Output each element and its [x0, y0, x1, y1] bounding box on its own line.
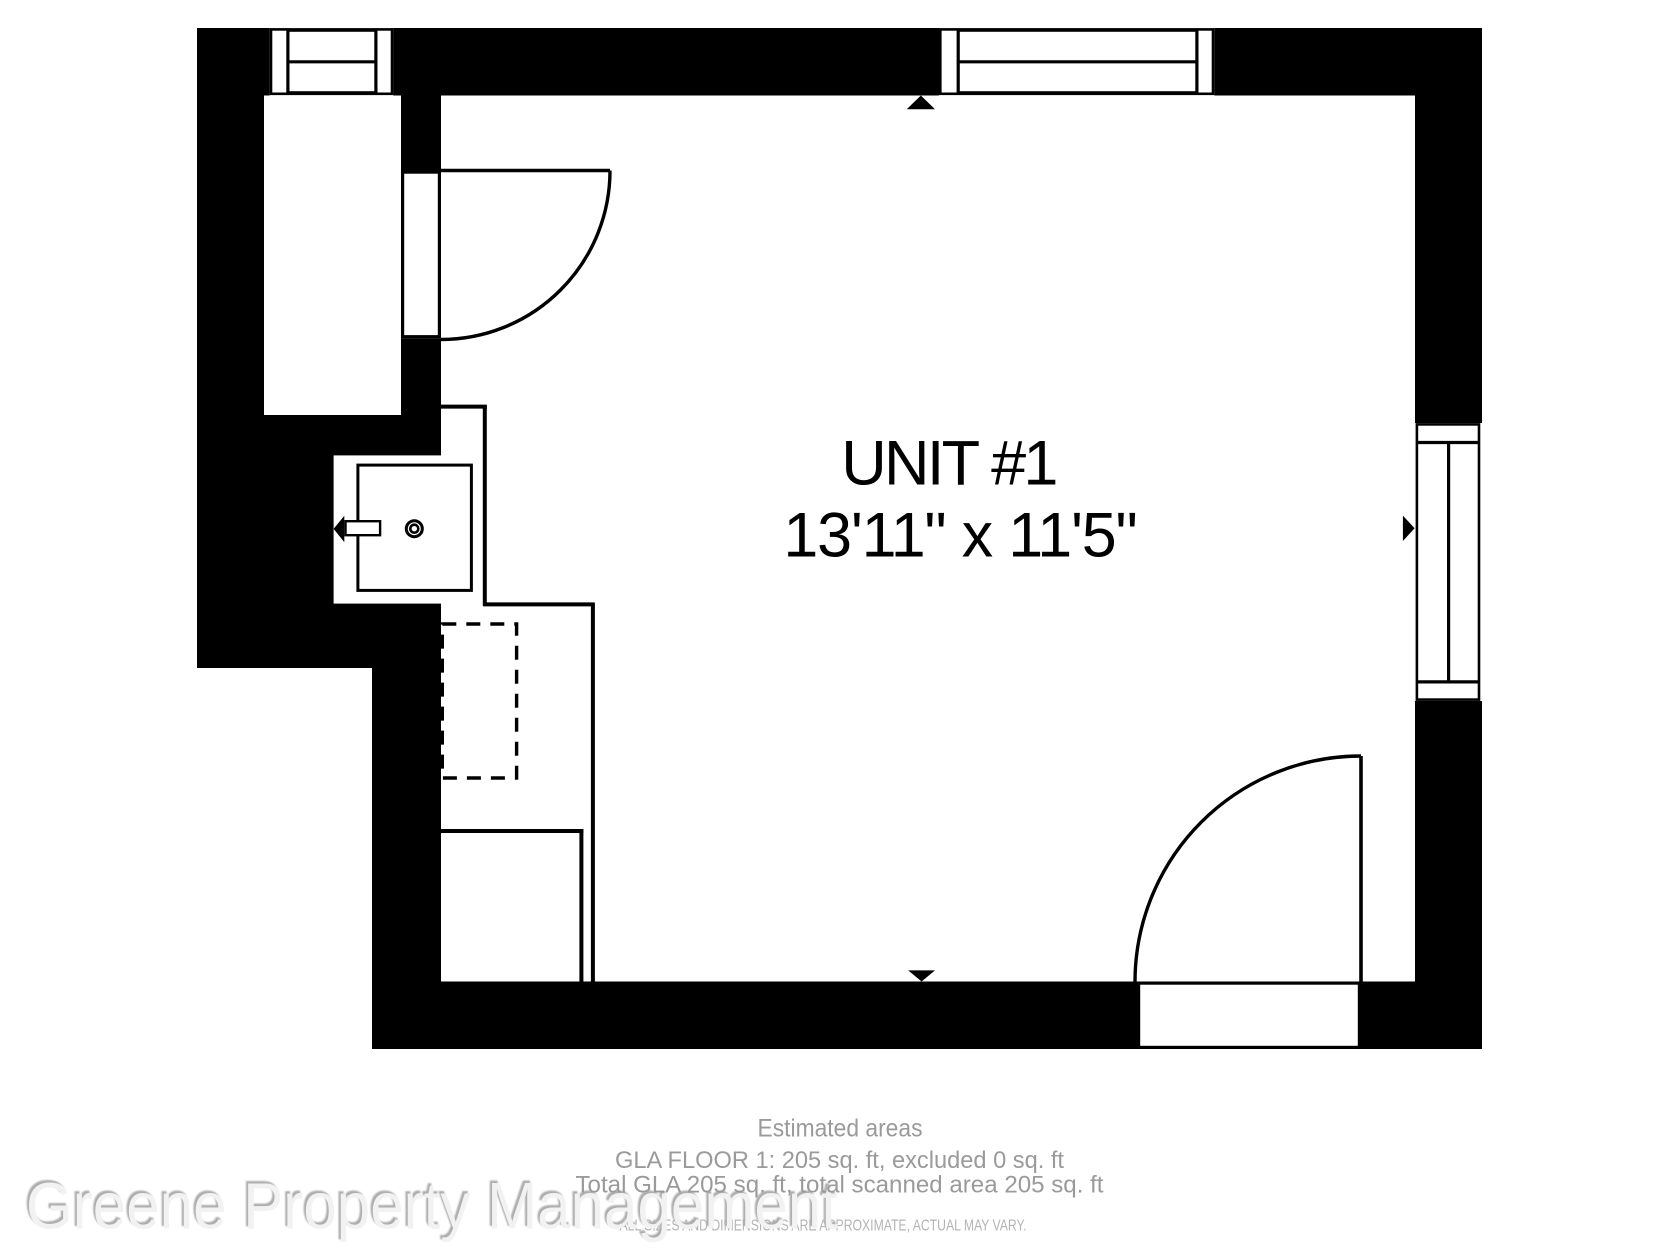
- svg-text:Total GLA 205 sq. ft, total sc: Total GLA 205 sq. ft, total scanned area…: [576, 1172, 1104, 1199]
- svg-text:GLA FLOOR 1: 205 sq. ft, exclu: GLA FLOOR 1: 205 sq. ft, excluded 0 sq. …: [615, 1147, 1064, 1174]
- svg-text:13'11" x 11'5": 13'11" x 11'5": [783, 501, 1136, 571]
- svg-text:Estimated areas: Estimated areas: [758, 1116, 923, 1143]
- svg-text:UNIT #1: UNIT #1: [841, 429, 1056, 499]
